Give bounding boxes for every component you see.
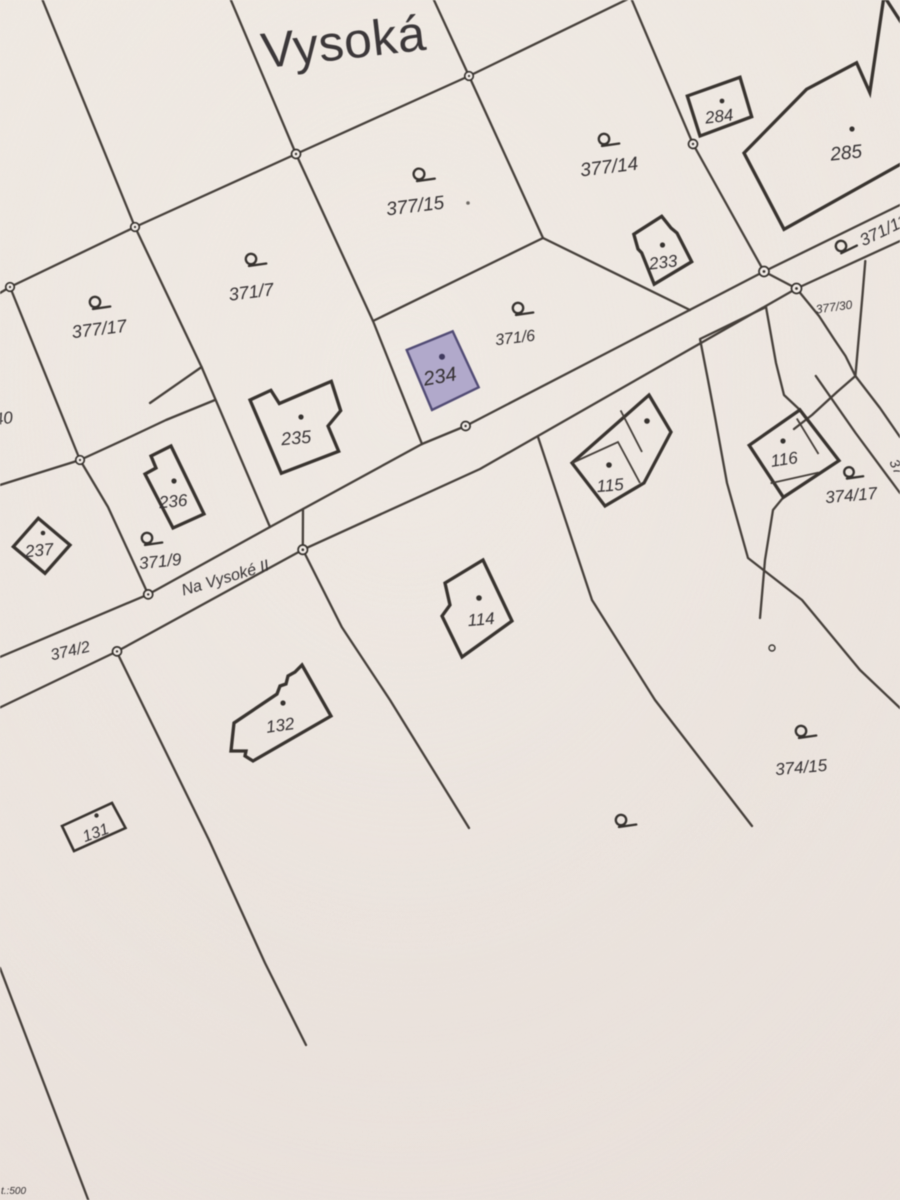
svg-text:237: 237 — [23, 540, 54, 562]
svg-text:285: 285 — [828, 141, 863, 165]
svg-text:233: 233 — [647, 251, 679, 274]
svg-text:t.:500: t.:500 — [1, 1186, 26, 1197]
svg-text:284: 284 — [703, 105, 734, 127]
svg-text:132: 132 — [265, 714, 296, 737]
svg-text:115: 115 — [596, 475, 625, 496]
svg-text:235: 235 — [279, 427, 313, 450]
svg-text:114: 114 — [467, 609, 496, 630]
svg-text:116: 116 — [769, 448, 799, 471]
svg-text:236: 236 — [157, 491, 188, 513]
